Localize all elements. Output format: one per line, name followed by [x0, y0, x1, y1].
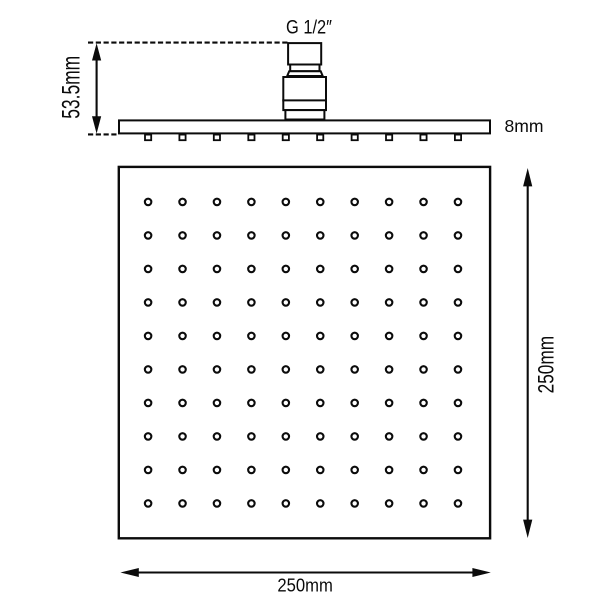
svg-text:8mm: 8mm: [505, 116, 544, 136]
svg-text:250mm: 250mm: [277, 575, 333, 596]
svg-text:250mm: 250mm: [533, 336, 558, 394]
svg-text:53.5mm: 53.5mm: [58, 56, 86, 119]
svg-text:G 1/2″: G 1/2″: [286, 17, 332, 38]
